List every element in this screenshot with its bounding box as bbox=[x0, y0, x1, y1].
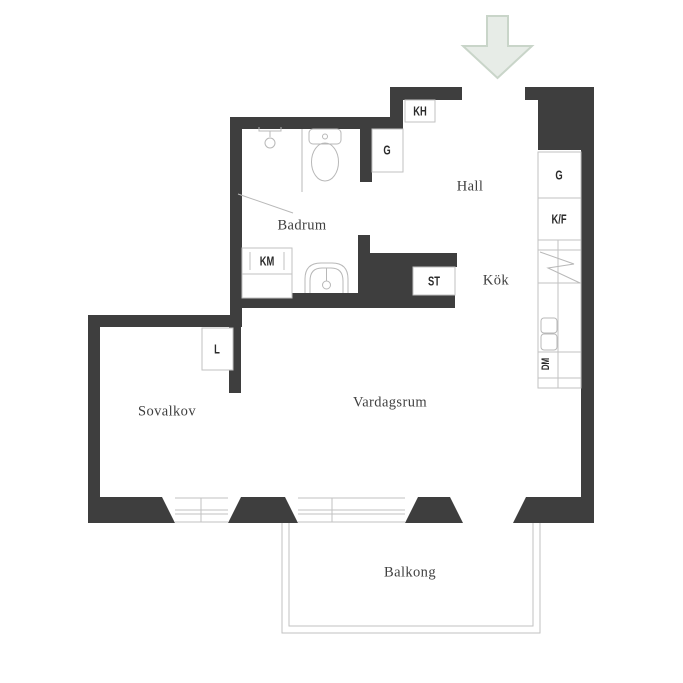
wall-top-right-of-entrance bbox=[525, 87, 538, 100]
room-label-balkong: Balkong bbox=[384, 565, 436, 582]
wall-st-left-block bbox=[370, 267, 413, 295]
floor-plan: Hall Kök Badrum Sovalkov Vardagsrum Balk… bbox=[0, 0, 683, 683]
wall-top-right-block bbox=[538, 87, 594, 150]
wall-bottom-piece-c bbox=[405, 497, 463, 523]
kitchen-sink-icon bbox=[541, 318, 557, 333]
wall-sovalkov-top bbox=[88, 315, 242, 327]
fixture-label-kf: K/F bbox=[551, 212, 566, 227]
room-label-vardagsrum: Vardagsrum bbox=[353, 395, 427, 412]
wall-hall-left-connector bbox=[390, 87, 403, 129]
wall-bottom-piece-b bbox=[228, 497, 298, 523]
fixture-label-st: ST bbox=[428, 274, 440, 289]
kitchen-sink-icon bbox=[541, 334, 557, 350]
window-left bbox=[175, 498, 228, 522]
shower-icon bbox=[259, 127, 281, 148]
fixture-label-g-kitchen: G bbox=[555, 168, 562, 183]
wall-badrum-right-upper bbox=[360, 129, 372, 182]
bathroom-diagonal-line bbox=[238, 194, 293, 213]
window-center bbox=[298, 498, 405, 522]
wall-bottom-piece-d bbox=[513, 497, 594, 523]
wall-bottom-piece-a bbox=[88, 497, 175, 523]
room-label-kok: Kök bbox=[483, 273, 509, 290]
room-label-sovalkov: Sovalkov bbox=[138, 404, 196, 421]
washbasin-icon bbox=[305, 263, 348, 293]
wall-st-top bbox=[370, 253, 457, 267]
fixture-label-km: KM bbox=[260, 254, 275, 269]
room-label-hall: Hall bbox=[457, 179, 484, 196]
fixture-label-dm: DM bbox=[540, 358, 552, 370]
fixture-label-g-hall: G bbox=[383, 143, 390, 158]
room-label-badrum: Badrum bbox=[277, 218, 326, 235]
walls bbox=[88, 87, 594, 523]
toilet-icon bbox=[309, 129, 341, 181]
wall-top-left-of-entrance bbox=[403, 87, 462, 100]
wall-right bbox=[581, 150, 594, 523]
fixture-label-kh: KH bbox=[413, 104, 427, 119]
wall-badrum-top bbox=[230, 117, 403, 129]
fixture-label-l: L bbox=[214, 342, 220, 357]
entrance-arrow-icon bbox=[463, 16, 532, 78]
wall-left bbox=[88, 315, 100, 523]
floor-plan-drawing bbox=[0, 0, 683, 683]
